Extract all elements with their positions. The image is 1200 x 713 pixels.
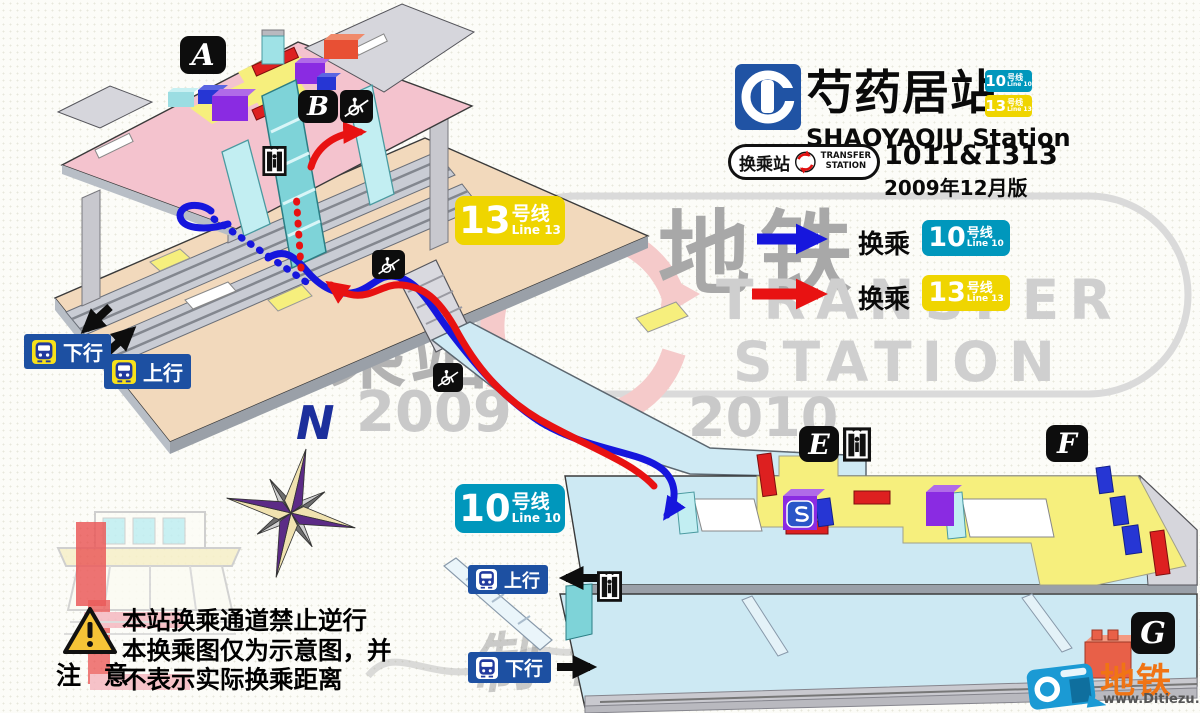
notice-text: 本站换乘通道禁止逆行 本换乘图仅为示意图，并 不表示实际换乘距离 [122,606,392,695]
elevator-icon [597,571,622,602]
train-icon [476,657,498,679]
legend-arrows [752,239,818,294]
compass-rose [227,449,356,577]
transfer-circle-icon [794,144,817,180]
legend-line10-badge: 10 号线Line 10 [922,220,1010,256]
ditiezu-logo-icon [1026,660,1106,713]
train-icon [476,569,497,590]
ditiezu-url: www.Ditiezu.com [1103,692,1200,707]
line10-up-badge: 上行 [468,565,548,594]
exit-a-label: A [180,36,226,74]
map-edition: 2009年12月版 [884,172,1028,201]
wheelchair-escalator-icon [372,250,405,279]
station-codes: 1011&1313 [884,140,1058,171]
line-number: 10 [985,74,1006,88]
compass-north-label: N [296,396,335,450]
notice-line-1: 本站换乘通道禁止逆行 [122,606,392,636]
line10-down-badge: 下行 [468,652,551,683]
exit-g-label: G [1131,612,1175,654]
line13-down-badge: 下行 [24,334,111,369]
map-line13-badge: 13 号线Line 13 [455,196,565,245]
pill-label-zh: 换乘站 [739,150,790,175]
notice-line-2: 本换乘图仅为示意图，并 [122,636,392,666]
line10-concourse [565,453,1197,594]
legend-line13-badge: 13 号线Line 13 [922,275,1010,311]
station-transfer-map: 北 地铁 换乘站 TRANSFER STATION 2009 2010 制作 S… [0,0,1200,713]
exit-b-label: B [298,90,338,123]
exit-f-label: F [1046,425,1088,462]
line-number: 13 [985,99,1006,113]
corridor-pad [636,302,688,332]
exit-e-label: E [799,426,839,462]
pill-label-en: TRANSFER STATION [821,152,871,172]
header-line10-badge: 10 号线Line 10 [985,70,1032,92]
elevator-spiral-icon [787,501,813,527]
elevator-icon [843,426,871,463]
station-name-zh: 芍药居站 [806,54,998,123]
beijing-subway-logo [735,64,801,130]
transfer-station-pill: 换乘站 TRANSFER STATION [728,144,880,180]
warning-triangle-icon [62,606,118,656]
legend-to10-label: 换乘 [858,224,910,261]
elevator-icon [261,146,288,176]
train-icon [112,360,136,384]
wheelchair-escalator-icon [340,90,373,123]
legend-to13-label: 换乘 [858,279,910,316]
notice-line-3: 不表示实际换乘距离 [122,665,392,695]
train-icon [32,340,56,364]
wheelchair-escalator-icon [433,363,463,392]
map-line10-badge: 10 号线Line 10 [455,484,565,533]
line13-up-badge: 上行 [104,354,191,389]
header-line13-badge: 13 号线Line 13 [985,95,1032,117]
